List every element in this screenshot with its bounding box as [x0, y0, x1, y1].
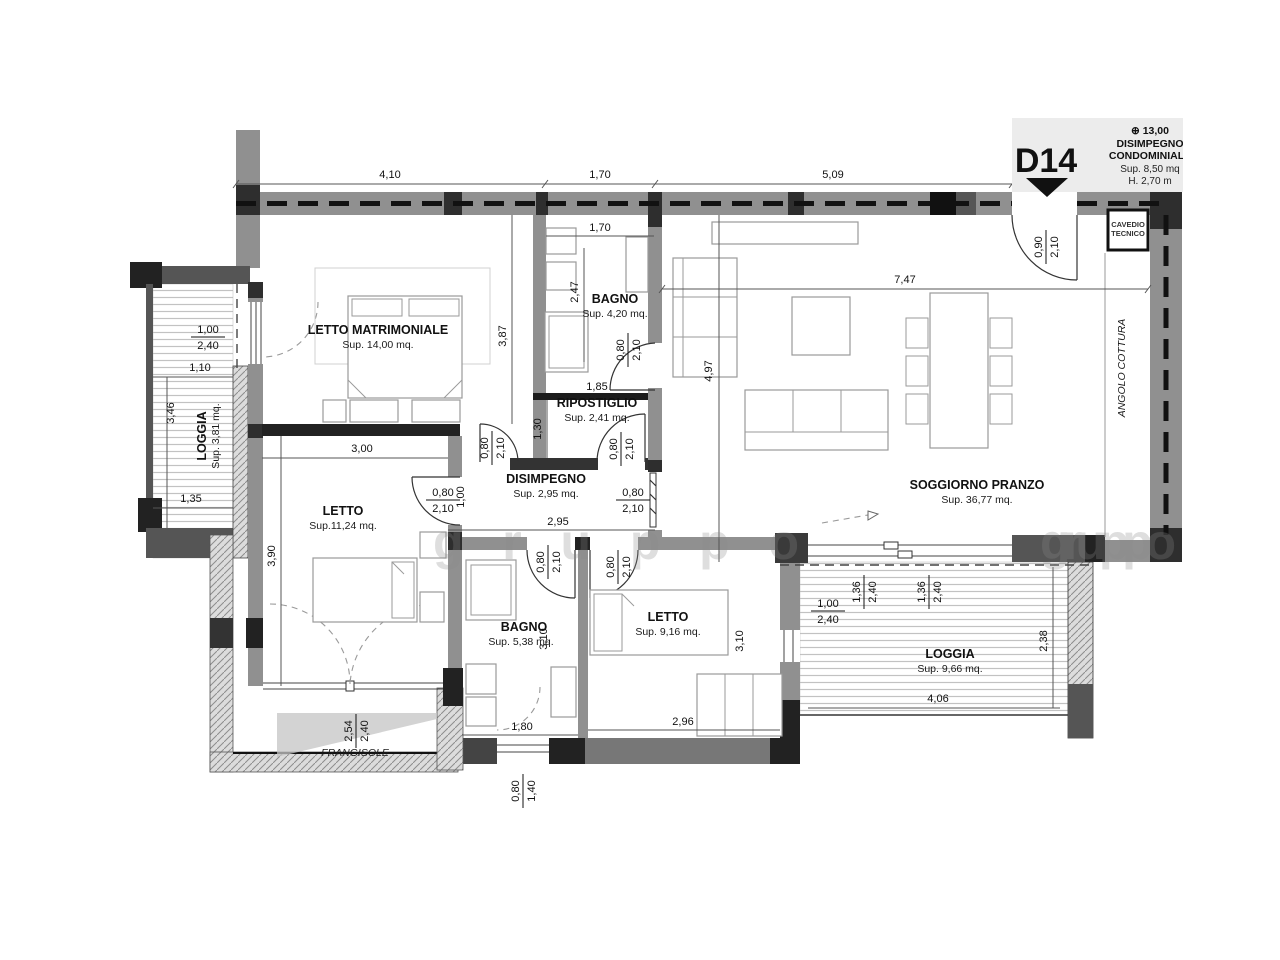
svg-text:0,80: 0,80 — [605, 556, 617, 577]
room-label-letto3: LETTO — [648, 610, 689, 624]
svg-text:0,80: 0,80 — [622, 487, 643, 499]
svg-text:2,10: 2,10 — [624, 438, 636, 459]
svg-text:2,40: 2,40 — [932, 581, 944, 602]
floor-plan-page: LETTO MATRIMONIALE Sup. 14,00 mq. BAGNO … — [0, 0, 1280, 960]
room-area-ripostiglio: Sup. 2,41 mq. — [564, 412, 629, 424]
dim-door-ripostiglio-right: 0,802,10 — [608, 432, 636, 466]
dim-1-85: 1,85 — [586, 381, 607, 393]
room-area-letto3: Sup. 9,16 mq. — [635, 626, 700, 638]
svg-text:2,10: 2,10 — [631, 339, 643, 360]
svg-text:0,90: 0,90 — [1033, 236, 1045, 257]
nightstand — [420, 592, 444, 622]
bathtub — [545, 312, 588, 372]
dim-door-soggiorno: 0,802,10 — [616, 487, 650, 515]
room-area-loggia-right: Sup. 9,66 mq. — [917, 663, 982, 675]
title-line2: CONDOMINIALE — [1109, 150, 1191, 162]
svg-text:1,00: 1,00 — [817, 598, 838, 610]
svg-text:2,40: 2,40 — [359, 720, 371, 741]
svg-text:2,10: 2,10 — [1049, 236, 1061, 257]
room-label-loggia-right: LOGGIA — [925, 647, 974, 661]
dim-1-35: 1,35 — [180, 493, 201, 505]
room-label-cavedio-line2: TECNICO — [1111, 229, 1145, 238]
label-frangisole: FRANGISOLE — [321, 747, 390, 759]
corner-sofa — [673, 258, 737, 377]
dim-7-47: 7,47 — [894, 274, 915, 286]
dim-3-87: 3,87 — [497, 325, 509, 346]
dim-1-30: 1,30 — [532, 418, 544, 439]
svg-text:1,00: 1,00 — [197, 324, 218, 336]
svg-text:1,36: 1,36 — [916, 581, 928, 602]
dim-4-97: 4,97 — [703, 360, 715, 381]
entry-path-arrow — [822, 511, 878, 523]
nightstand — [323, 400, 346, 422]
room-label-bagno1: BAGNO — [592, 292, 639, 306]
dim-3-00: 3,00 — [351, 443, 372, 455]
svg-text:0,80: 0,80 — [479, 437, 491, 458]
svg-text:2,40: 2,40 — [197, 340, 218, 352]
svg-text:1,36: 1,36 — [851, 581, 863, 602]
washer — [551, 667, 576, 717]
single-bed — [313, 558, 417, 622]
title-elevation: ⊕ 13,00 — [1131, 125, 1169, 137]
sink — [466, 697, 496, 726]
dim-4-06: 4,06 — [927, 693, 948, 705]
dim-1-70-top: 1,70 — [589, 169, 610, 181]
unit-code: D14 — [1015, 142, 1077, 180]
floor-plan-drawing: LETTO MATRIMONIALE Sup. 14,00 mq. BAGNO … — [0, 0, 1280, 960]
room-area-letto-matrimoniale: Sup. 14,00 mq. — [342, 339, 413, 351]
svg-text:0,80: 0,80 — [615, 339, 627, 360]
title-line1: DISIMPEGNO — [1116, 138, 1183, 150]
dim-5-09: 5,09 — [822, 169, 843, 181]
dim-4-10: 4,10 — [379, 169, 400, 181]
svg-text:2,54: 2,54 — [343, 720, 355, 741]
title-block: D14 ⊕ 13,00 DISIMPEGNO CONDOMINIALE Sup.… — [1012, 118, 1191, 197]
dim-window-bagno2: 0,801,40 — [510, 774, 538, 808]
svg-text:0,80: 0,80 — [510, 780, 522, 801]
dim-2-96: 2,96 — [672, 716, 693, 728]
sofa — [745, 390, 888, 450]
title-height: H. 2,70 m — [1128, 176, 1171, 187]
svg-text:2,10: 2,10 — [495, 437, 507, 458]
dim-1-70-bagno: 1,70 — [589, 222, 610, 234]
svg-text:LOGGIA: LOGGIA — [195, 411, 209, 460]
dim-2-47: 2,47 — [569, 281, 581, 302]
svg-text:0,80: 0,80 — [608, 438, 620, 459]
dim-door-bagno2: 0,802,10 — [535, 545, 563, 579]
dim-1-10: 1,10 — [189, 362, 210, 374]
title-area: Sup. 8,50 mq — [1120, 164, 1179, 175]
coffee-table — [792, 297, 850, 355]
room-label-ripostiglio: RIPOSTIGLIO — [557, 396, 638, 410]
dining-table — [906, 293, 1012, 448]
room-label-soggiorno: SOGGIORNO PRANZO — [910, 478, 1045, 492]
watermark-text-right: gruppo — [1040, 514, 1180, 570]
room-label-angolo-cottura: ANGOLO COTTURA — [1116, 319, 1128, 419]
svg-text:1,40: 1,40 — [526, 780, 538, 801]
room-label-letto2: LETTO — [323, 504, 364, 518]
dim-3-10-bagno2: 3,10 — [538, 628, 550, 649]
room-area-soggiorno: Sup. 36,77 mq. — [941, 494, 1012, 506]
room-area-bagno1: Sup. 4,20 mq. — [582, 308, 647, 320]
sink — [466, 664, 496, 694]
sideboard — [712, 222, 858, 244]
wardrobe — [697, 674, 782, 736]
room-area-letto2: Sup.11,24 mq. — [309, 520, 377, 532]
svg-text:0,80: 0,80 — [535, 551, 547, 572]
dim-3-46: 3,46 — [165, 402, 177, 423]
room-label-disimpegno: DISIMPEGNO — [506, 472, 586, 486]
dim-3-10-letto3: 3,10 — [734, 630, 746, 651]
bench — [412, 400, 460, 422]
room-label-loggia-left: LOGGIA Sup. 3,81 mq. — [195, 403, 222, 468]
dim-2-38: 2,38 — [1038, 630, 1050, 651]
svg-text:Sup. 3,81 mq.: Sup. 3,81 mq. — [210, 403, 222, 468]
svg-text:2,40: 2,40 — [817, 614, 838, 626]
dim-1-80: 1,80 — [511, 721, 532, 733]
svg-text:0,80: 0,80 — [432, 487, 453, 499]
bench — [350, 400, 398, 422]
cabinet — [626, 237, 648, 292]
room-area-disimpegno: Sup. 2,95 mq. — [513, 488, 578, 500]
dim-3-90: 3,90 — [266, 545, 278, 566]
svg-text:2,40: 2,40 — [867, 581, 879, 602]
room-label-letto-matrimoniale: LETTO MATRIMONIALE — [308, 323, 449, 337]
dim-1-00-wall: 1,00 — [455, 486, 467, 507]
sink — [546, 228, 576, 254]
room-label-cavedio-line1: CAVEDIO — [1111, 220, 1145, 229]
dim-door-entrance: 0,902,10 — [1033, 230, 1061, 264]
dim-door-ripostiglio-left: 0,802,10 — [479, 431, 507, 465]
